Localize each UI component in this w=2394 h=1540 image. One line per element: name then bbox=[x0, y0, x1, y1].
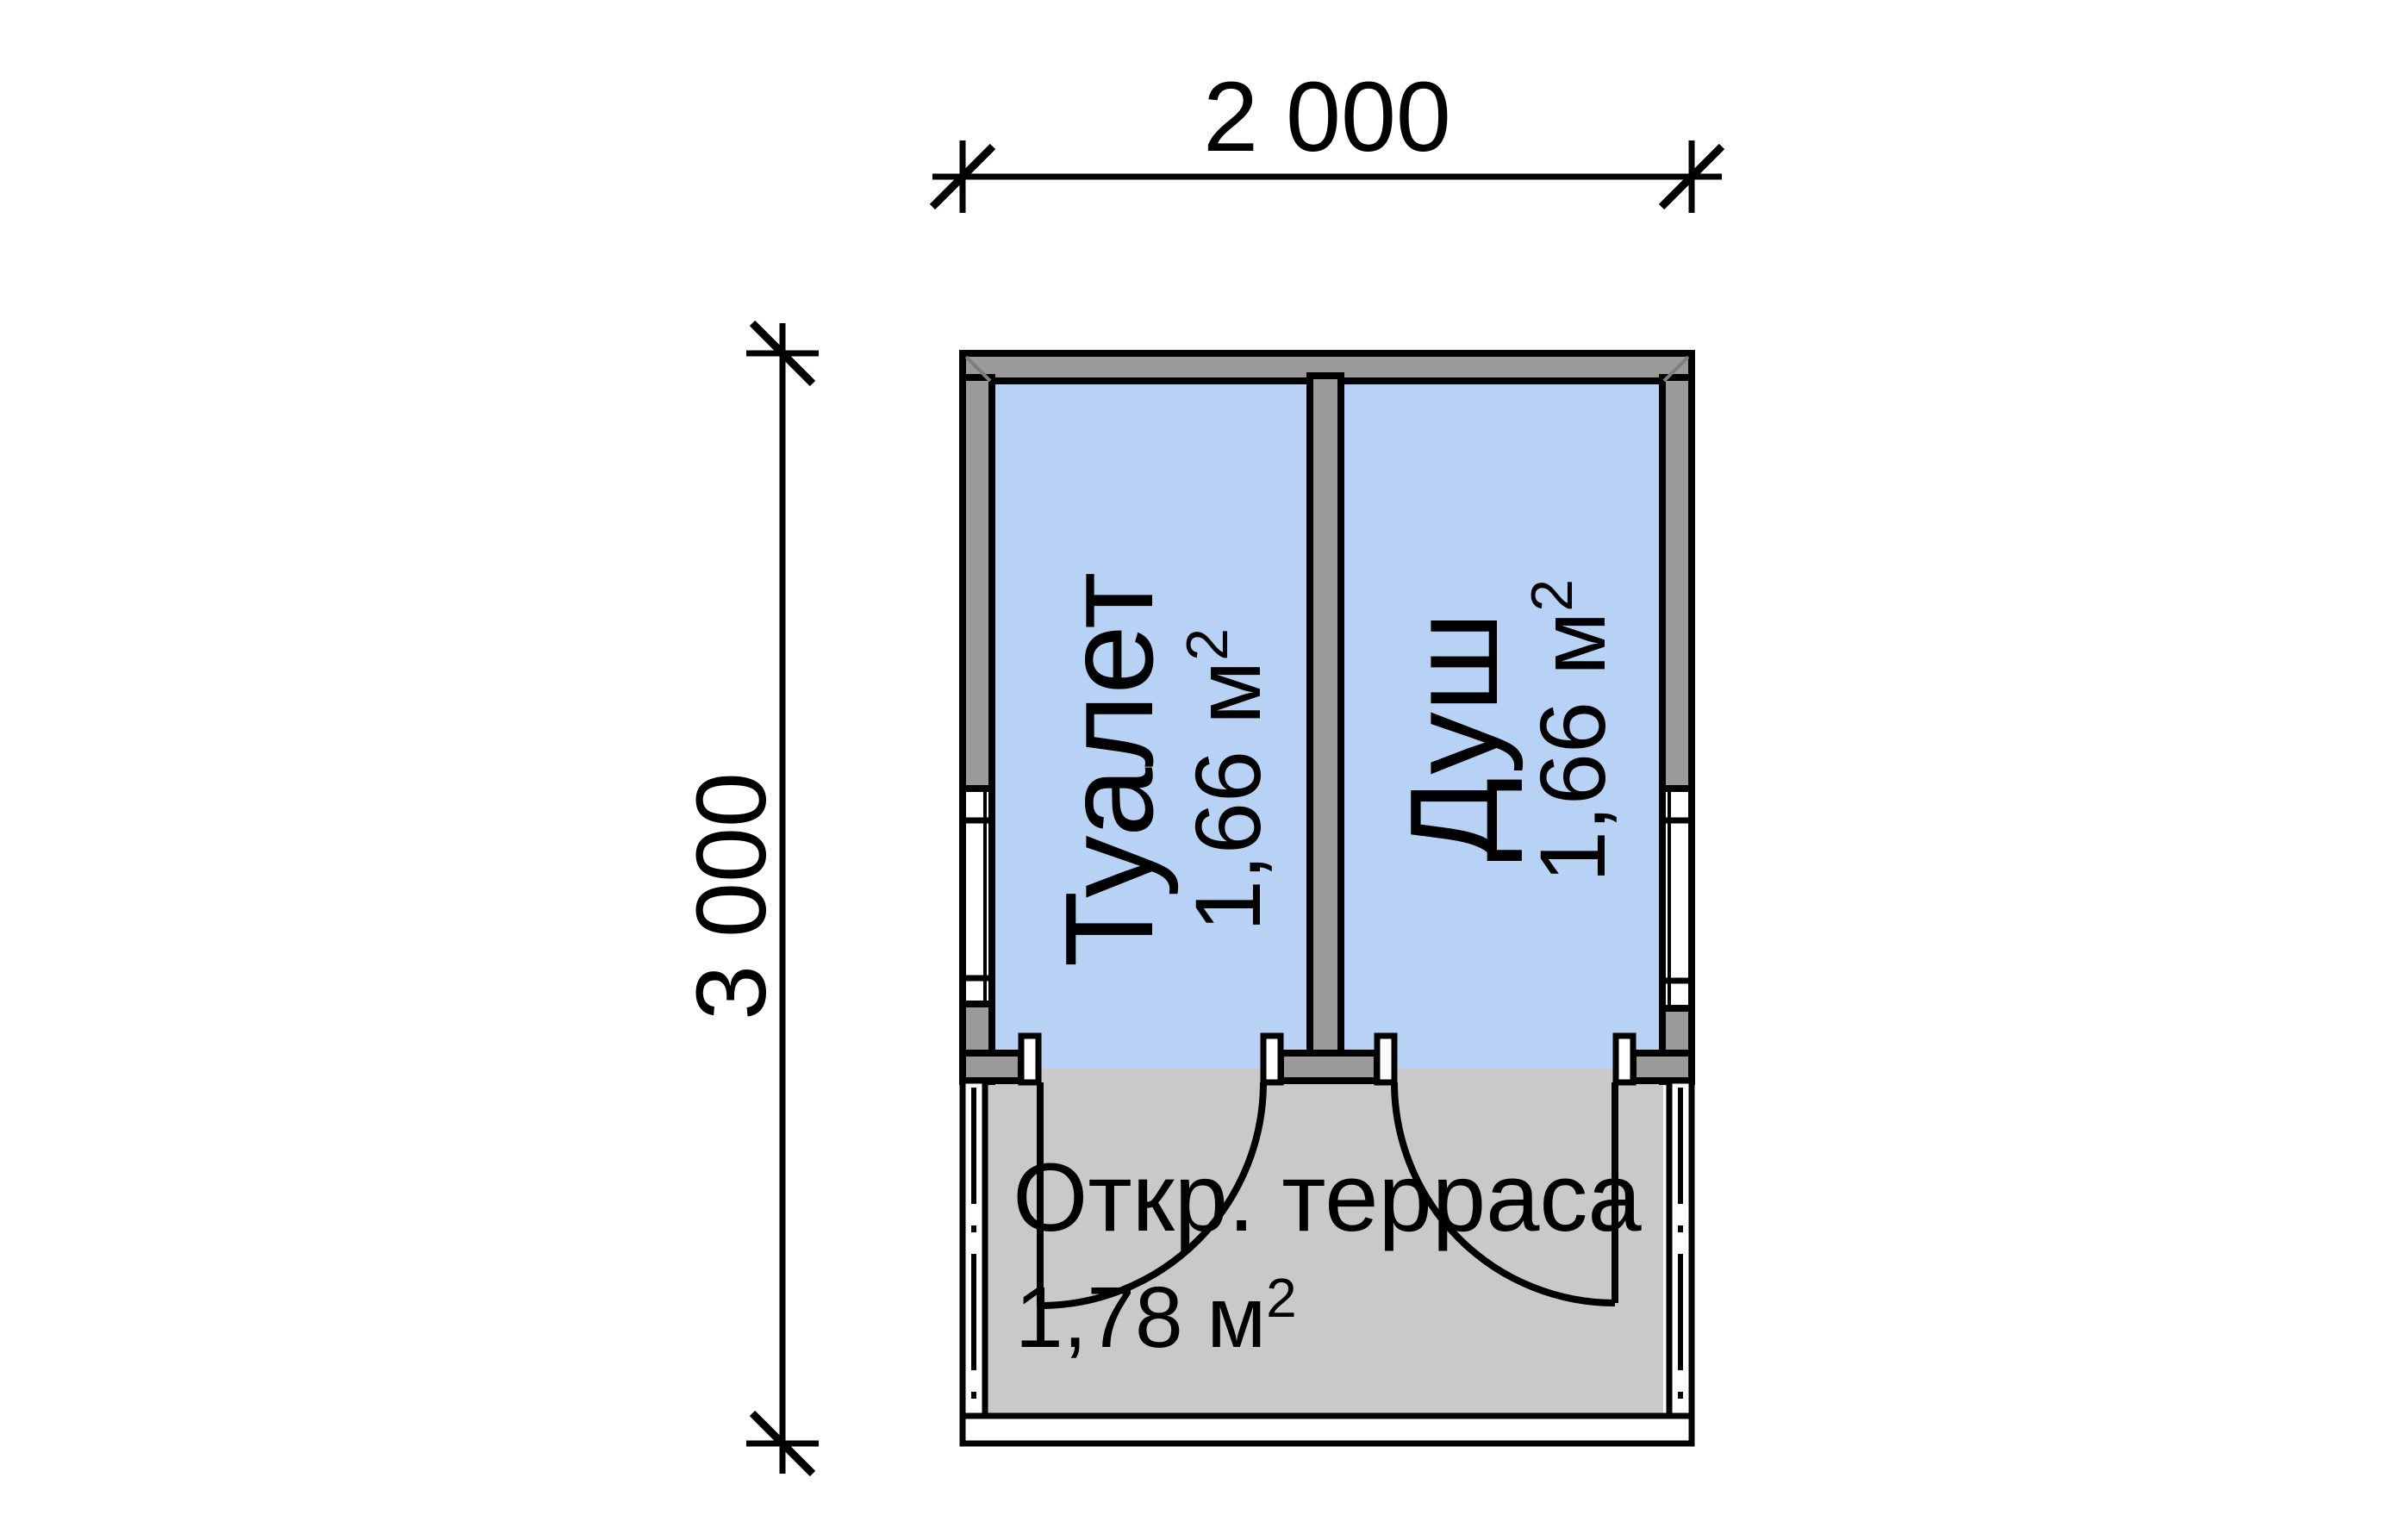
wall-right-upper bbox=[1662, 377, 1692, 789]
floor-plan-drawing: 2 000 3 000 Туалет 1,66 м2 Душ 1,66 м2 О… bbox=[0, 0, 2394, 1540]
dimension-height: 3 000 bbox=[676, 323, 819, 1474]
terrace-area-superscript: 2 bbox=[1266, 1267, 1297, 1329]
toilet-room-name: Туалет bbox=[1039, 572, 1179, 968]
dim-width-label: 2 000 bbox=[1203, 62, 1451, 172]
wall-partition bbox=[1310, 376, 1341, 1057]
shower-room-labels: Душ 1,66 м2 bbox=[1384, 579, 1624, 882]
wall-front-left bbox=[963, 1053, 1021, 1081]
shower-room-name: Душ bbox=[1384, 612, 1524, 862]
terrace-name: Откр. терраса bbox=[1013, 1144, 1642, 1251]
shower-room-area: 1,66 м2 bbox=[1519, 579, 1624, 882]
terrace-area: 1,78 м2 bbox=[1015, 1267, 1297, 1366]
wall-left-upper bbox=[963, 377, 992, 789]
wall-front-cap bbox=[1281, 1053, 1377, 1081]
dimension-width: 2 000 bbox=[932, 62, 1722, 213]
shower-door-jamb-right bbox=[1616, 1036, 1633, 1082]
toilet-door-jamb-right bbox=[1263, 1036, 1281, 1082]
toilet-room-area: 1,66 м2 bbox=[1175, 628, 1280, 932]
terrace-edge-bottom bbox=[963, 1416, 1692, 1443]
shower-door-jamb-left bbox=[1377, 1036, 1394, 1082]
toilet-area-superscript: 2 bbox=[1175, 628, 1240, 661]
window-left bbox=[963, 789, 992, 1004]
window-right bbox=[1662, 789, 1692, 1008]
floor-plan-page: 2 000 3 000 Туалет 1,66 м2 Душ 1,66 м2 О… bbox=[0, 0, 2394, 1540]
dim-height-label: 3 000 bbox=[676, 772, 787, 1020]
toilet-door-jamb-left bbox=[1021, 1036, 1038, 1082]
wall-front-right bbox=[1633, 1053, 1692, 1081]
shower-area-superscript: 2 bbox=[1519, 579, 1585, 612]
